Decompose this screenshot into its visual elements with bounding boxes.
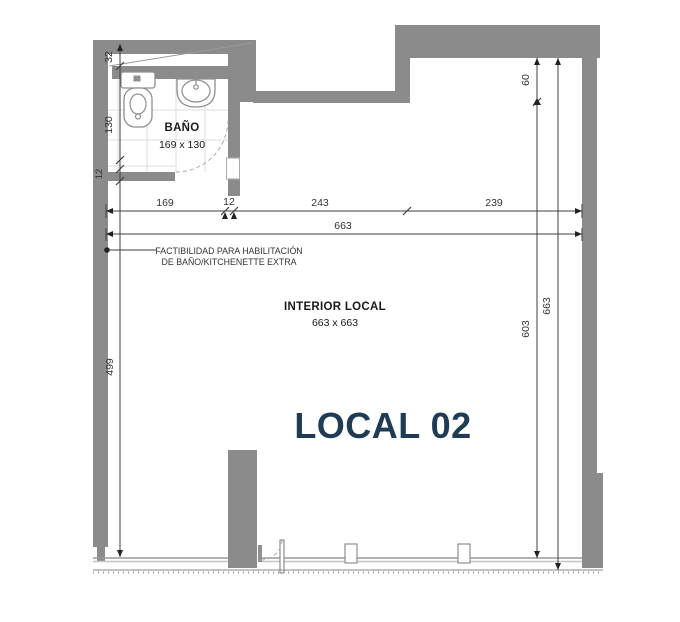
interior-label: INTERIOR LOCAL xyxy=(284,301,386,313)
wall-top-recessed xyxy=(253,91,410,103)
walls xyxy=(93,25,603,568)
entry-door-post xyxy=(258,545,262,562)
entry-door-swing xyxy=(261,539,282,560)
interior-size-label: 663 x 663 xyxy=(312,317,358,329)
note-line-2: DE BAÑO/KITCHENETTE EXTRA xyxy=(162,257,297,267)
storefront-glazing xyxy=(93,539,582,573)
dim-603: 603 xyxy=(520,320,532,338)
local-title: LOCAL 02 xyxy=(294,405,471,446)
bathroom-label: BAÑO xyxy=(164,121,199,134)
floor-plan-drawing: BAÑO 169 x 130 169 12 243 239 663 xyxy=(0,0,680,622)
dim-239: 239 xyxy=(485,197,503,209)
dimension-right-inner: 60 603 xyxy=(520,58,541,558)
wall-bottom-pier xyxy=(228,450,257,568)
wall-left xyxy=(93,40,108,547)
wall-top-right-band xyxy=(395,25,600,58)
leader-dot xyxy=(104,247,110,253)
mullion xyxy=(458,544,470,563)
wall-right-upper xyxy=(582,58,597,473)
wall-right-lower xyxy=(582,473,603,568)
wall-bath-bottom xyxy=(108,172,175,181)
floor-plan-page: BAÑO 169 x 130 169 12 243 239 663 xyxy=(0,0,680,622)
dim-60: 60 xyxy=(520,74,532,86)
dim-663-width: 663 xyxy=(334,220,352,232)
dimension-top-total: 663 xyxy=(106,220,582,241)
toilet-icon xyxy=(121,72,155,127)
bathroom-door-jamb xyxy=(227,158,240,179)
dim-499: 499 xyxy=(104,358,116,376)
dim-12: 12 xyxy=(223,196,235,208)
feasibility-note: FACTIBILIDAD PARA HABILITACIÓN DE BAÑO/K… xyxy=(104,246,302,267)
dim-243: 243 xyxy=(311,197,329,209)
dim-32: 32 xyxy=(103,51,115,63)
entry-door-leaf xyxy=(280,540,284,573)
mullion xyxy=(345,544,357,563)
dim-12-left: 12 xyxy=(94,169,105,180)
dim-663-height: 663 xyxy=(541,297,553,315)
interior-labels: INTERIOR LOCAL 663 x 663 LOCAL 02 xyxy=(284,301,472,446)
dim-169: 169 xyxy=(156,197,174,209)
wall-left-stub xyxy=(97,547,105,561)
dimension-top-segments: 169 12 243 239 xyxy=(106,196,582,219)
dimension-right-total: 663 xyxy=(541,58,558,570)
note-line-1: FACTIBILIDAD PARA HABILITACIÓN xyxy=(155,246,302,256)
bathroom-size-label: 169 x 130 xyxy=(159,139,205,151)
dim-130: 130 xyxy=(103,116,115,134)
site-boundary xyxy=(93,570,603,573)
